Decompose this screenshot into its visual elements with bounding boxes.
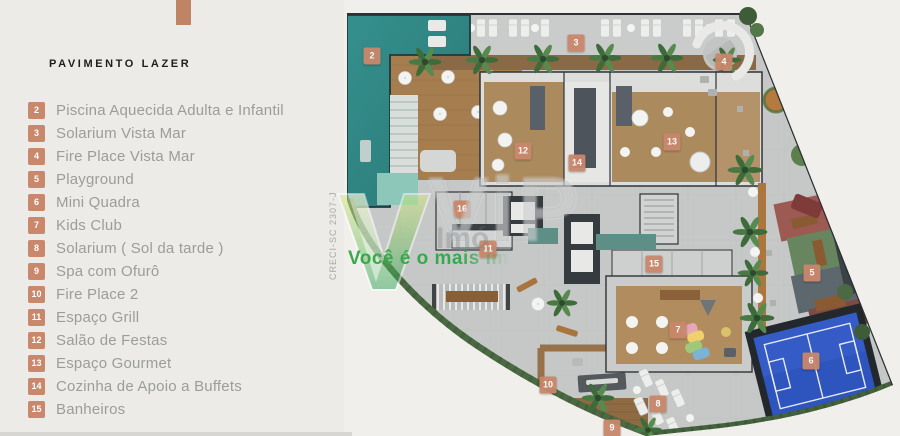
page-root: PAVIMENTO LAZER 2 Piscina Aquecida Adult… [0, 0, 900, 436]
grill-pergola [432, 284, 510, 310]
party-hall-building [480, 72, 762, 186]
floor-plan [0, 0, 900, 436]
kids-club [606, 276, 752, 372]
